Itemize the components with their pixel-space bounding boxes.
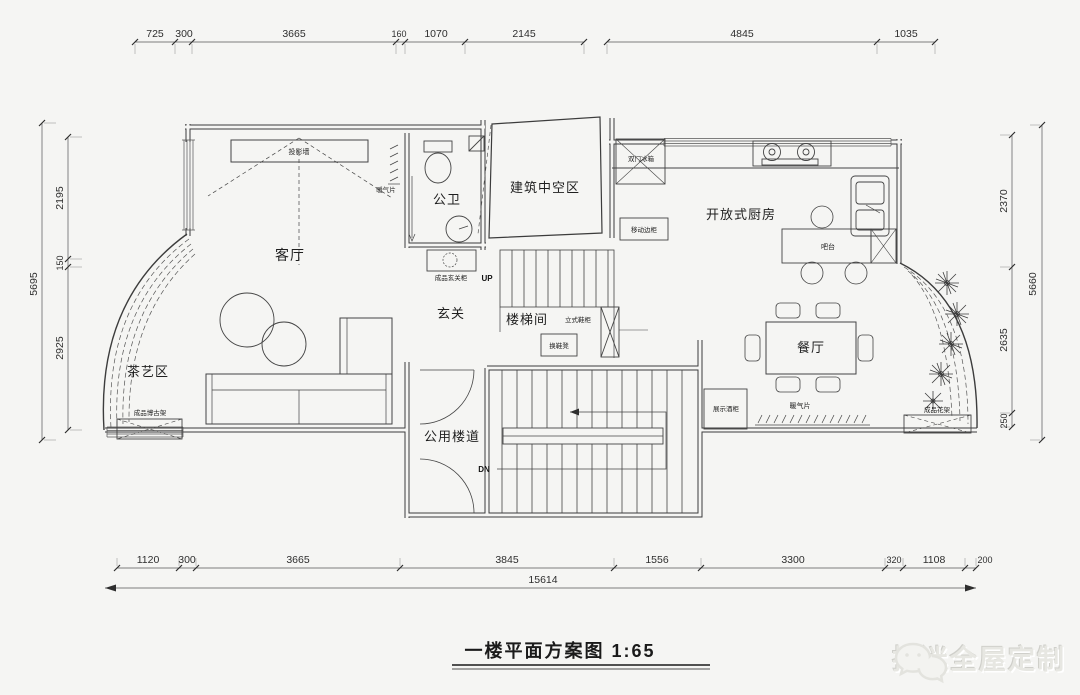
room-label-living: 客厅 — [275, 247, 305, 263]
dim-top-7: 4845 — [730, 28, 754, 40]
dim-bottom-8: 1108 — [923, 554, 946, 566]
dim-left-2: 150 — [55, 255, 65, 270]
bar-stool-icon — [845, 262, 867, 284]
tea-table-icon — [220, 293, 274, 347]
tea-table-icon — [262, 322, 306, 366]
dim-chain-top: 725 300 3665 160 1070 2145 4845 1035 — [132, 28, 938, 54]
entry-cabinet — [427, 250, 476, 271]
dim-bottom-total: 15614 — [528, 574, 557, 586]
floor-plan-canvas: 725 300 3665 160 1070 2145 4845 1035 112… — [0, 0, 1080, 695]
chair-icon — [858, 335, 873, 361]
dining-radiator-marks — [758, 415, 866, 423]
room-label-foyer: 玄关 — [437, 306, 465, 321]
dim-right-3: 250 — [999, 413, 1009, 428]
room-label-void: 建筑中空区 — [510, 180, 580, 195]
room-label-corridor: 公用楼道 — [424, 429, 480, 444]
dim-top-2: 300 — [175, 28, 193, 40]
dim-left-total: 5695 — [28, 272, 40, 296]
drawing-title: 一楼平面方案图 1:65 — [464, 640, 655, 661]
window-left — [182, 140, 195, 230]
room-label-dining: 餐厅 — [797, 340, 825, 355]
chair-icon — [816, 303, 840, 318]
dim-right-1: 2370 — [998, 189, 1010, 213]
dim-chain-left: 5695 2195 150 2925 — [28, 120, 82, 443]
room-label-stairwell: 楼梯间 — [506, 312, 548, 327]
room-label-kitchen: 开放式厨房 — [706, 207, 776, 222]
stairs-lower — [497, 370, 682, 513]
dim-top-5: 1070 — [424, 28, 448, 40]
label-curio-shelf: 成品博古架 — [134, 408, 167, 417]
toilet-tank — [424, 141, 452, 152]
window-kitchen-top — [664, 139, 891, 147]
bathroom — [388, 136, 484, 242]
dim-bottom-6: 3300 — [781, 554, 805, 566]
chair-icon — [776, 377, 800, 392]
dim-bottom-1: 1120 — [137, 554, 160, 566]
label-fridge: 双门冰箱 — [628, 154, 655, 163]
door-arc-bottom — [420, 459, 474, 513]
label-radiator-bath: 暖气片 — [376, 185, 396, 194]
living-room — [117, 138, 392, 439]
label-projection-wall: 投影墙 — [289, 147, 310, 156]
door-arc-top — [420, 370, 474, 424]
dim-bottom-9: 200 — [977, 555, 992, 565]
label-entry-cabinet: 成品玄关柜 — [435, 273, 468, 282]
dim-chain-bottom: 1120 300 3665 3845 1556 3300 320 1108 20… — [105, 554, 993, 592]
dim-bottom-3: 3665 — [286, 554, 310, 566]
plant-icons — [923, 271, 969, 411]
stove-icon — [753, 141, 831, 166]
bar-stool-icon — [801, 262, 823, 284]
shower-door-line — [409, 176, 415, 241]
toilet-icon — [425, 153, 451, 183]
label-bar-counter: 吧台 — [821, 242, 835, 251]
label-mobile-cabinet: 移动边柜 — [631, 225, 658, 234]
bay-curve-dining — [900, 263, 977, 428]
label-up: UP — [481, 274, 493, 283]
brand-logo-icon — [892, 638, 950, 684]
chair-icon — [745, 335, 760, 361]
chair-icon — [776, 303, 800, 318]
dim-bottom-7: 320 — [886, 555, 901, 565]
dim-bottom-4: 3845 — [495, 554, 519, 566]
dim-top-4: 160 — [391, 29, 406, 39]
stairs-upper — [500, 250, 614, 358]
chair-icon — [816, 377, 840, 392]
bath-radiator-marks — [390, 145, 398, 181]
chaise-icon — [340, 318, 392, 374]
dim-top-6: 2145 — [512, 28, 536, 40]
dim-bottom-5: 1556 — [645, 554, 669, 566]
label-dn: DN — [478, 465, 490, 474]
shoe-cabinet-box — [601, 307, 648, 357]
void-area — [478, 117, 602, 238]
dim-left-1: 2195 — [54, 186, 66, 210]
label-shoe-bench: 换鞋凳 — [549, 341, 569, 350]
room-label-tea: 茶艺区 — [127, 364, 169, 379]
floor-plan-drawing: 725 300 3665 160 1070 2145 4845 1035 112… — [0, 0, 1080, 695]
room-label-bath: 公卫 — [433, 192, 461, 207]
dim-left-3: 2925 — [54, 336, 66, 360]
bay-curve-tea-area — [103, 234, 195, 430]
dim-top-3: 3665 — [282, 28, 306, 40]
label-wine-cabinet: 展示酒柜 — [713, 404, 740, 413]
label-radiator-dining: 暖气片 — [790, 401, 811, 410]
dim-bottom-2: 300 — [178, 554, 196, 566]
label-flower-stand: 成品花架 — [924, 405, 951, 414]
dim-right-total: 5660 — [1027, 272, 1039, 296]
bar-stool-icon — [811, 206, 833, 228]
dim-top-1: 725 — [146, 28, 164, 40]
sink-icon — [851, 176, 889, 236]
dim-chain-right: 5660 2370 2635 250 — [998, 122, 1045, 443]
brand-watermark: 拉迷全屋定制 — [892, 638, 1066, 677]
dim-top-8: 1035 — [894, 28, 918, 40]
drawing-title-block: 一楼平面方案图 1:65 — [452, 640, 710, 669]
label-shoe-cabinet: 立式鞋柜 — [565, 315, 592, 324]
dim-right-2: 2635 — [998, 328, 1010, 352]
